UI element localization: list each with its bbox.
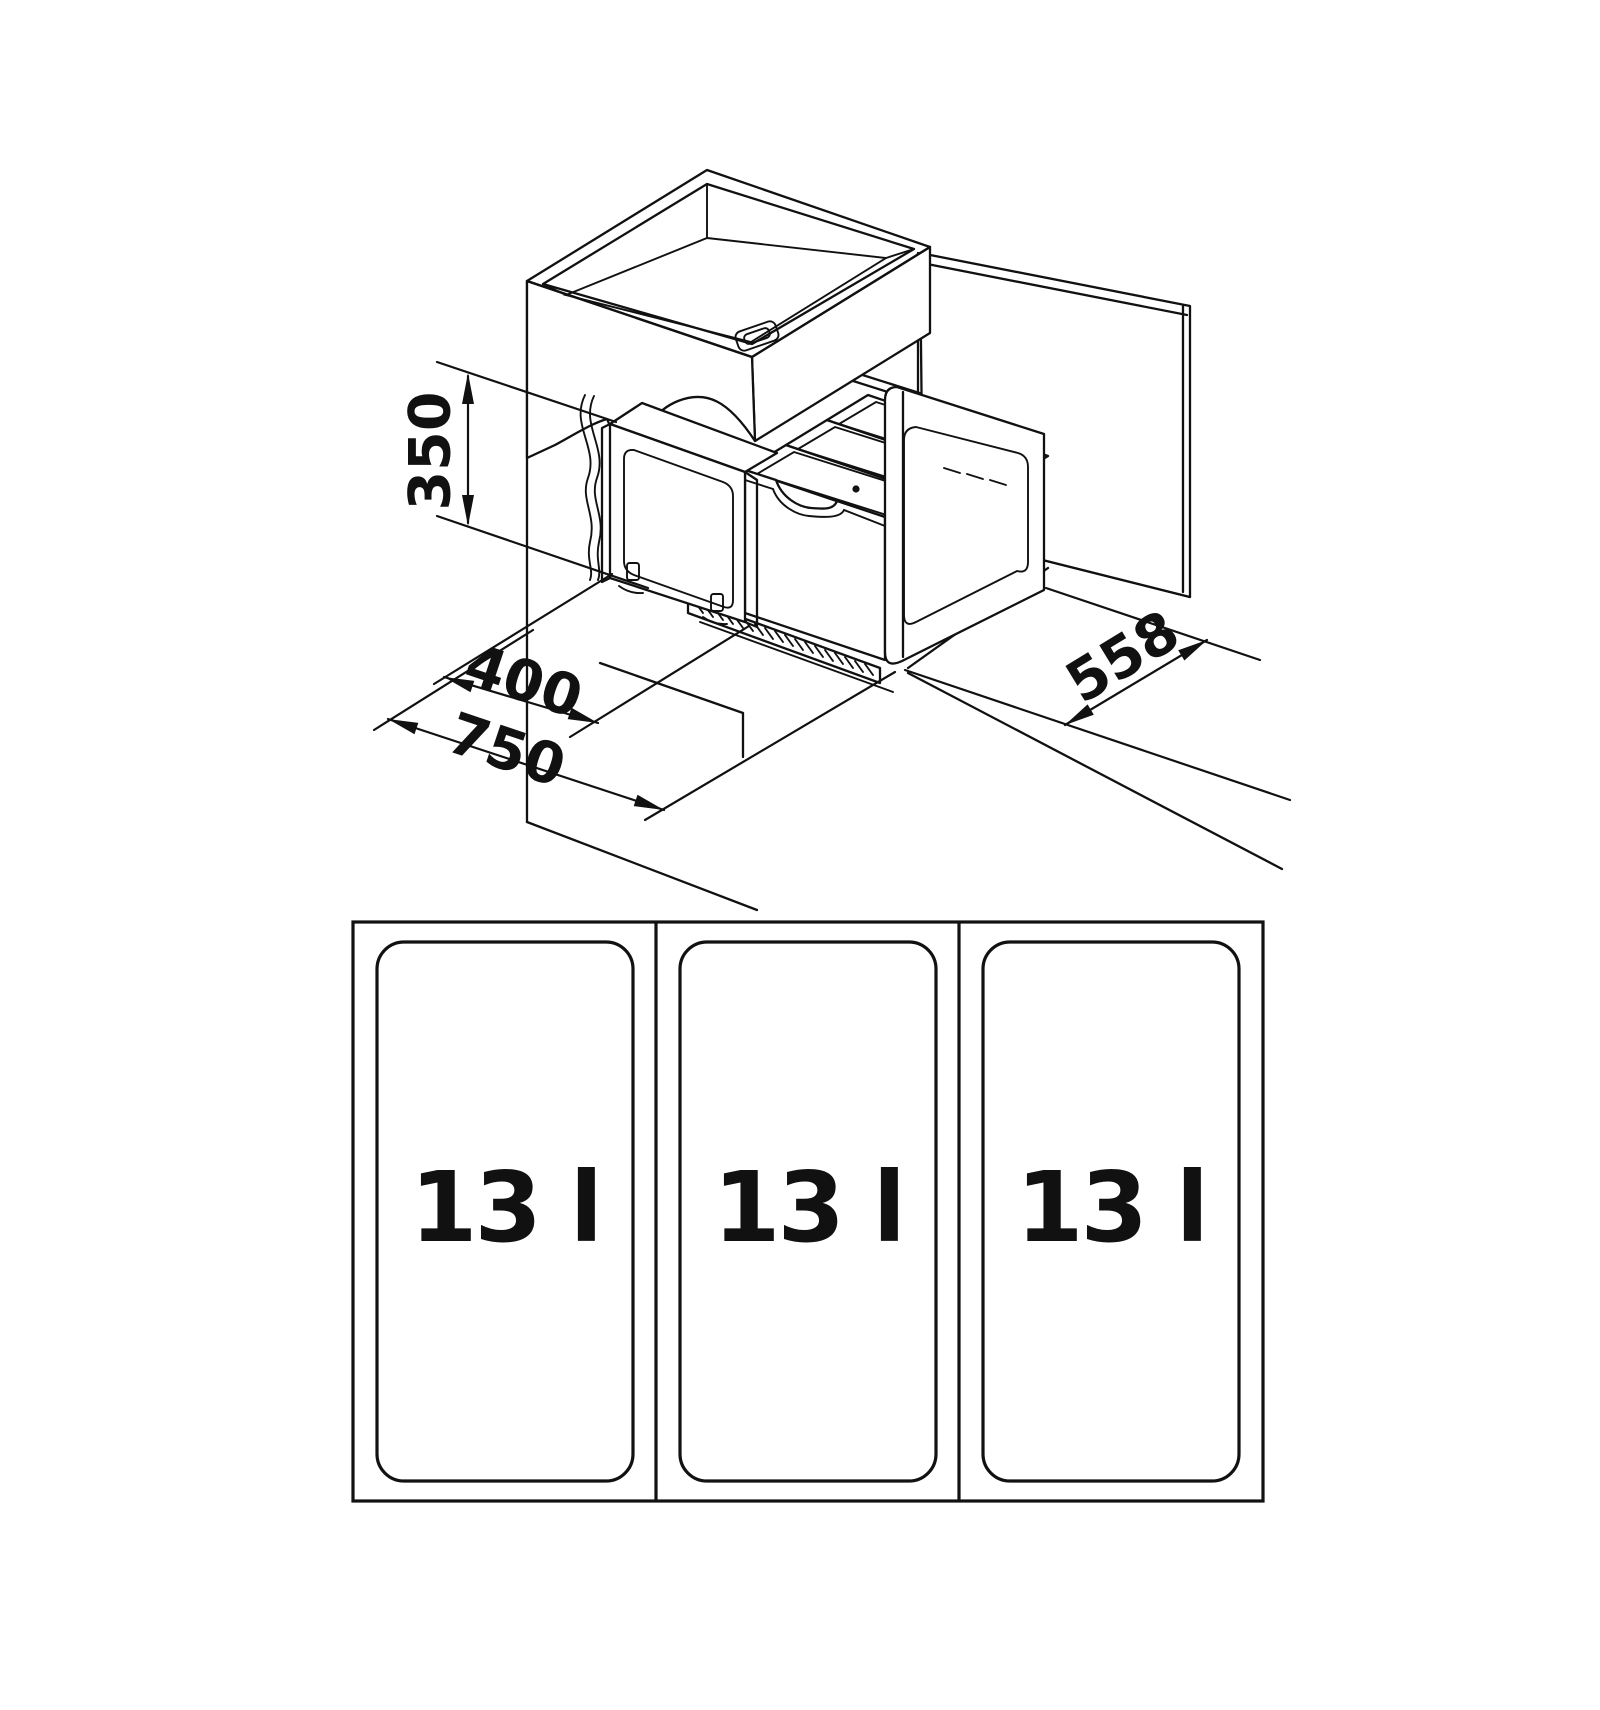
plan-view: 13 l 13 l 13 l	[353, 922, 1263, 1501]
plan-bin-3: 13 l	[983, 942, 1239, 1481]
bin-capacity-label: 13 l	[713, 1151, 903, 1264]
plan-bin-1: 13 l	[377, 942, 633, 1481]
right-cheek-panel	[885, 387, 1044, 664]
dimension-height-label: 350	[398, 392, 464, 511]
pull-out-unit	[602, 387, 1048, 692]
bin-capacity-label: 13 l	[410, 1151, 600, 1264]
installation-drawing: 350 400 750 558	[0, 0, 1600, 1710]
technical-drawing-page: 350 400 750 558	[0, 0, 1600, 1710]
isometric-view: 350 400 750 558	[374, 170, 1290, 910]
plan-bin-2: 13 l	[680, 942, 936, 1481]
bin-capacity-label: 13 l	[1016, 1151, 1206, 1264]
dimension-depth-label: 558	[1055, 598, 1191, 716]
